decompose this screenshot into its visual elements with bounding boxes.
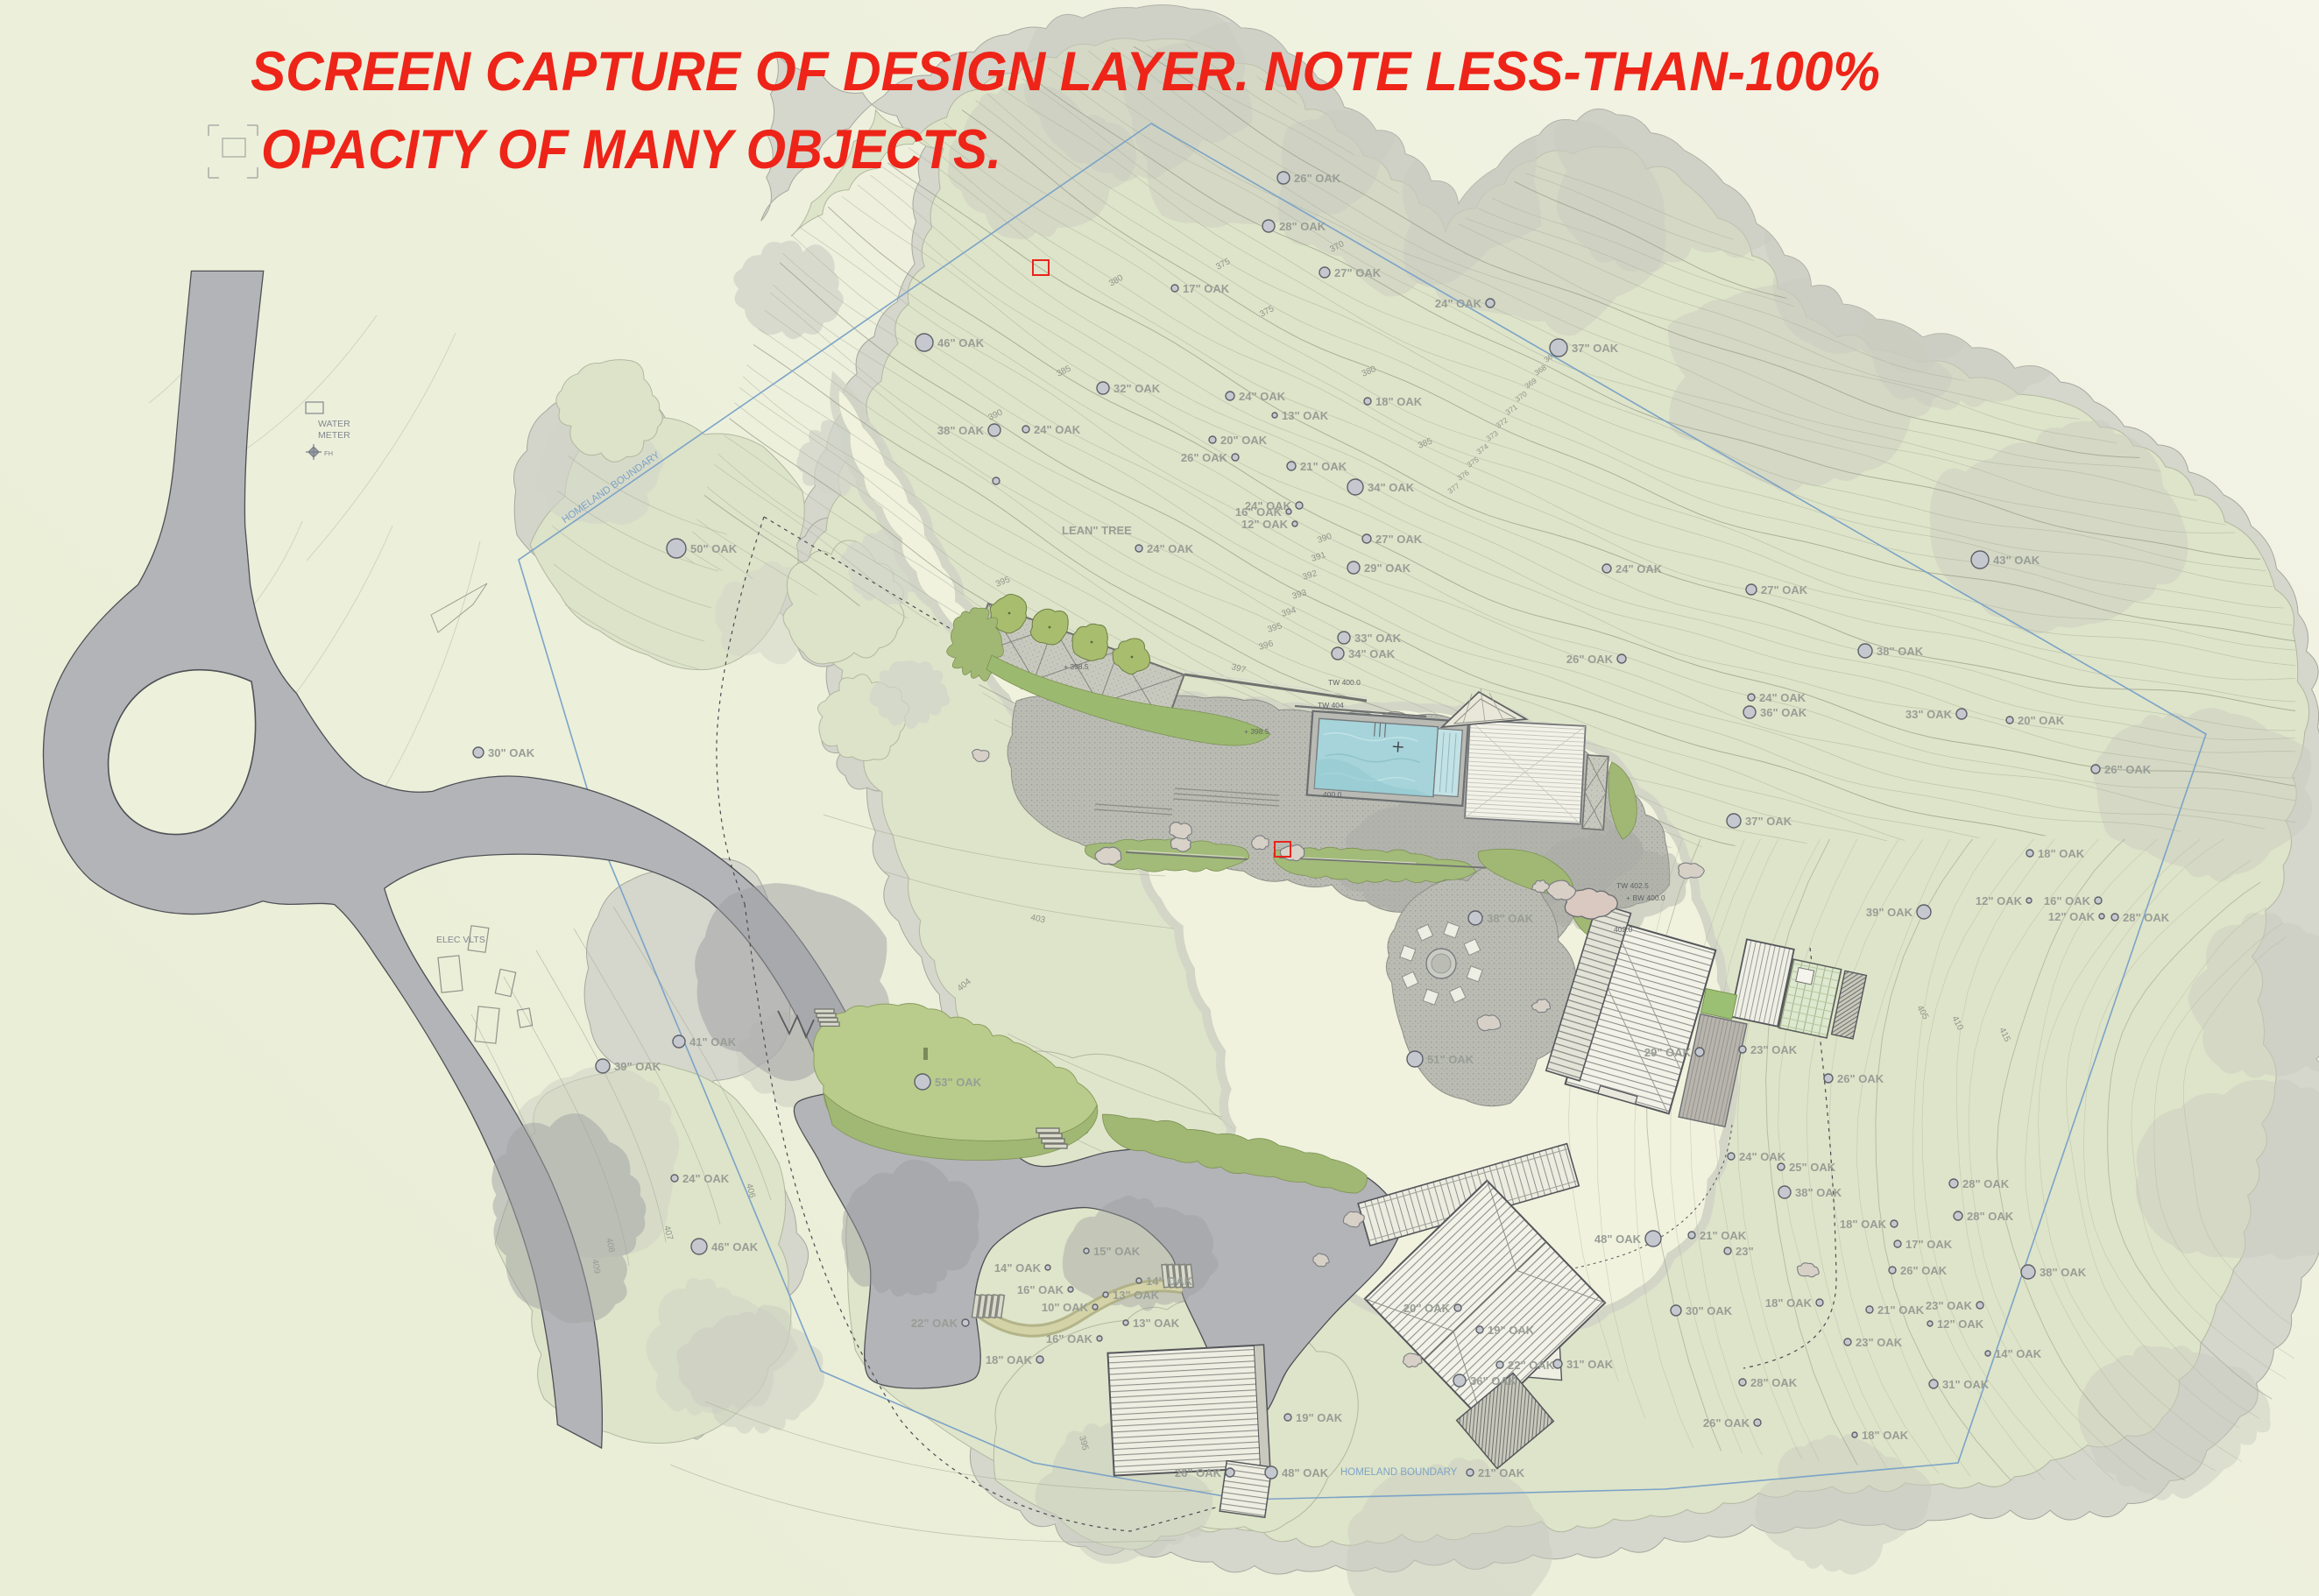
svg-text:38" OAK: 38" OAK [1795,1186,1842,1199]
svg-text:12" OAK: 12" OAK [1976,894,2023,907]
svg-text:24" OAK: 24" OAK [1616,562,1663,576]
svg-text:27" OAK: 27" OAK [1761,583,1808,597]
svg-text:17" OAK: 17" OAK [1183,282,1230,295]
svg-text:51" OAK: 51" OAK [1427,1053,1474,1066]
svg-text:24" OAK: 24" OAK [1147,542,1194,555]
svg-text:39" OAK: 39" OAK [614,1060,661,1073]
svg-text:18" OAK: 18" OAK [1862,1429,1909,1442]
svg-text:46" OAK: 46" OAK [937,336,985,350]
svg-text:27" OAK: 27" OAK [1334,266,1382,279]
svg-text:27" OAK: 27" OAK [1375,533,1423,546]
svg-text:12" OAK: 12" OAK [1241,518,1289,531]
svg-text:16" OAK: 16" OAK [1017,1283,1064,1296]
svg-text:26" OAK: 26" OAK [1703,1416,1750,1430]
svg-text:43" OAK: 43" OAK [1993,554,2040,567]
svg-text:20" OAK: 20" OAK [1403,1302,1451,1315]
svg-text:+ 398.5: + 398.5 [1244,727,1269,736]
svg-text:50" OAK: 50" OAK [690,542,738,555]
svg-text:21" OAK: 21" OAK [1877,1303,1925,1317]
svg-text:18" OAK: 18" OAK [2038,847,2085,860]
svg-text:46" OAK: 46" OAK [711,1240,759,1253]
svg-text:16" OAK: 16" OAK [2044,894,2091,907]
svg-text:16" OAK: 16" OAK [1046,1332,1093,1345]
svg-text:15" OAK: 15" OAK [1093,1245,1141,1258]
svg-text:20" OAK: 20" OAK [2018,714,2065,727]
svg-text:23" OAK: 23" OAK [1926,1299,1973,1312]
svg-text:13" OAK: 13" OAK [1133,1317,1180,1330]
svg-text:26" OAK: 26" OAK [1175,1466,1222,1479]
svg-text:28" OAK: 28" OAK [1750,1376,1798,1389]
svg-text:29" OAK: 29" OAK [1364,561,1411,575]
svg-text:34" OAK: 34" OAK [1348,647,1396,660]
svg-text:19" OAK: 19" OAK [1488,1324,1535,1337]
svg-text:53" OAK: 53" OAK [935,1076,982,1089]
svg-text:41" OAK: 41" OAK [689,1035,737,1049]
svg-text:38" OAK: 38" OAK [1877,645,1924,658]
svg-text:28" OAK: 28" OAK [2123,911,2170,924]
svg-text:25" OAK: 25" OAK [1789,1161,1836,1174]
svg-text:24" OAK: 24" OAK [682,1172,730,1185]
svg-text:38" OAK: 38" OAK [1487,912,1534,925]
svg-text:26" OAK: 26" OAK [2104,763,2152,776]
svg-text:23": 23" [1736,1245,1754,1258]
svg-text:26" OAK: 26" OAK [1837,1072,1884,1085]
svg-text:23" OAK: 23" OAK [1856,1336,1903,1349]
svg-text:30" OAK: 30" OAK [1686,1304,1733,1317]
svg-text:26" OAK: 26" OAK [1900,1264,1948,1277]
svg-text:SCREEN CAPTURE OF DESIGN LAYER: SCREEN CAPTURE OF DESIGN LAYER. NOTE LES… [251,41,1880,102]
svg-text:21" OAK: 21" OAK [1700,1229,1747,1242]
svg-text:36" OAK: 36" OAK [1760,706,1807,719]
svg-text:FH: FH [324,449,333,457]
svg-text:21" OAK: 21" OAK [1478,1466,1525,1479]
svg-text:TW 404: TW 404 [1318,701,1344,710]
svg-text:31" OAK: 31" OAK [1566,1358,1614,1371]
svg-text:32" OAK: 32" OAK [1114,382,1161,395]
svg-text:37" OAK: 37" OAK [1745,815,1792,828]
svg-text:24" OAK: 24" OAK [1739,1150,1786,1163]
svg-text:12" OAK: 12" OAK [2048,910,2096,923]
svg-text:OPACITY OF MANY OBJECTS.: OPACITY OF MANY OBJECTS. [261,119,1001,180]
svg-text:18" OAK: 18" OAK [1375,395,1423,408]
svg-text:33" OAK: 33" OAK [1354,632,1402,645]
svg-text:13" OAK: 13" OAK [1113,1289,1160,1302]
svg-text:18" OAK: 18" OAK [1840,1218,1887,1231]
svg-text:24" OAK: 24" OAK [1034,423,1081,436]
svg-text:13" OAK: 13" OAK [1282,409,1329,422]
svg-text:26" OAK: 26" OAK [1181,451,1228,464]
svg-text:402.0: 402.0 [1614,925,1633,934]
svg-text:14" OAK: 14" OAK [994,1261,1042,1275]
svg-text:29" OAK: 29" OAK [1644,1046,1692,1059]
svg-text:TW 400.0: TW 400.0 [1328,678,1361,687]
svg-text:48" OAK: 48" OAK [1594,1232,1642,1246]
svg-text:24" OAK: 24" OAK [1759,691,1806,704]
svg-text:33" OAK: 33" OAK [1905,708,1953,721]
svg-text:28" OAK: 28" OAK [1962,1177,2010,1190]
svg-text:20" OAK: 20" OAK [1220,434,1268,447]
svg-text:26" OAK: 26" OAK [1566,653,1614,666]
svg-text:23" OAK: 23" OAK [1750,1043,1798,1056]
svg-text:HOMELAND BOUNDARY: HOMELAND BOUNDARY [1340,1467,1458,1478]
svg-text:19" OAK: 19" OAK [1296,1411,1343,1424]
svg-text:+ BW 400.0: + BW 400.0 [1626,893,1665,902]
svg-text:22" OAK: 22" OAK [1508,1359,1555,1372]
svg-text:14" OAK: 14" OAK [1995,1347,2042,1360]
svg-text:17" OAK: 17" OAK [1905,1238,1953,1251]
svg-text:26" OAK: 26" OAK [1294,172,1341,185]
svg-text:37" OAK: 37" OAK [1572,342,1619,355]
svg-text:34" OAK: 34" OAK [1368,481,1415,494]
svg-text:18" OAK: 18" OAK [1765,1296,1813,1310]
svg-text:21" OAK: 21" OAK [1300,460,1347,473]
svg-text:14" OAK: 14" OAK [1146,1275,1193,1288]
svg-text:22" OAK: 22" OAK [911,1317,958,1330]
svg-text:400.0: 400.0 [1323,790,1342,799]
svg-text:28" OAK: 28" OAK [1967,1210,2014,1223]
svg-text:24" OAK: 24" OAK [1435,297,1482,310]
svg-text:36" OAK: 36" OAK [1470,1374,1517,1388]
svg-text:12" OAK: 12" OAK [1937,1317,1984,1331]
svg-text:16" OAK: 16" OAK [1235,505,1283,519]
svg-text:10" OAK: 10" OAK [1042,1301,1089,1314]
svg-text:30" OAK: 30" OAK [488,746,535,759]
svg-text:WATER: WATER [318,419,350,429]
svg-text:48" OAK: 48" OAK [1282,1466,1329,1479]
svg-text:LEAN" TREE: LEAN" TREE [1062,524,1132,537]
svg-text:28" OAK: 28" OAK [1279,220,1326,233]
svg-text:18" OAK: 18" OAK [986,1353,1033,1366]
svg-text:+ 398.5: + 398.5 [1064,662,1089,671]
svg-text:ELEC VLTS: ELEC VLTS [436,935,485,945]
svg-text:TW 402.5: TW 402.5 [1616,881,1649,890]
svg-text:24" OAK: 24" OAK [1239,390,1286,403]
svg-text:39" OAK: 39" OAK [1866,906,1913,919]
svg-text:31" OAK: 31" OAK [1942,1378,1990,1391]
svg-text:38" OAK: 38" OAK [2040,1266,2087,1279]
svg-text:METER: METER [318,430,350,441]
svg-text:38" OAK: 38" OAK [937,424,985,437]
